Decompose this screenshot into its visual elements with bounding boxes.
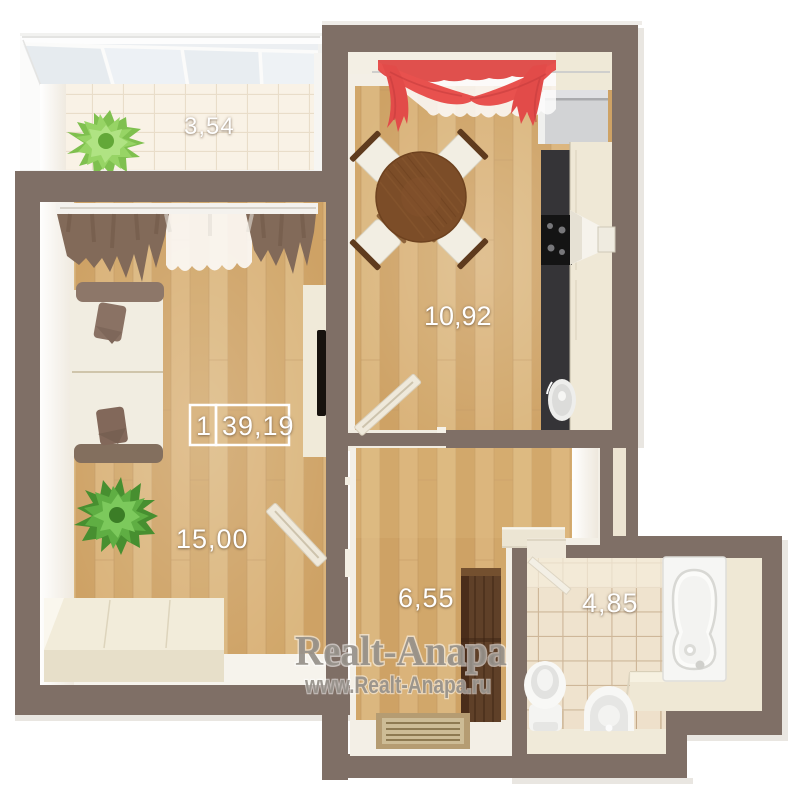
svg-text:Realt-Anapa: Realt-Anapa [295, 629, 507, 675]
svg-text:www.Realt-Anapa.ru: www.Realt-Anapa.ru [304, 672, 491, 699]
